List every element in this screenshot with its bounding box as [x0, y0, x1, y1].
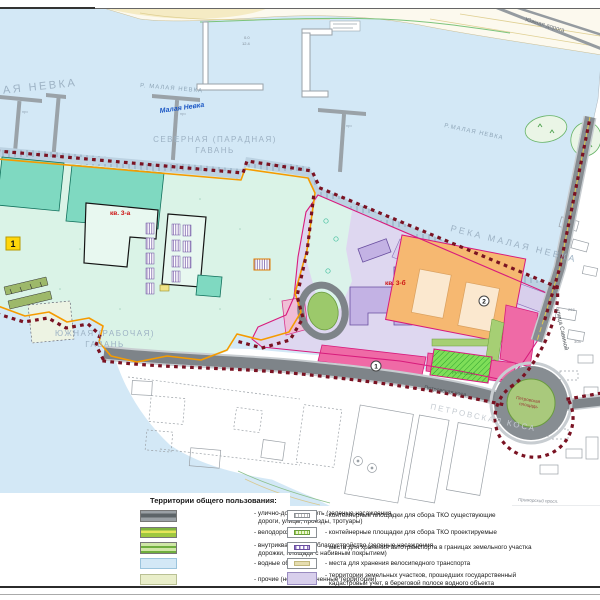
harbor-label: ЮЖНАЯ (РАБОЧАЯ)	[55, 329, 155, 338]
pier-label: прч	[346, 124, 352, 128]
legend-swatch-tko-planned	[287, 527, 317, 538]
harbor-label: ГАВАНЬ	[85, 340, 125, 349]
legend-title: Территории общего пользования:	[150, 497, 277, 504]
depth-label: 12.4	[242, 41, 251, 46]
harbor-label: ГАВАНЬ	[195, 146, 235, 155]
parcel-number: 268	[568, 307, 575, 312]
legend-item-label: - места для хранения велосипедного транс…	[325, 560, 470, 567]
sheet-bottom-rule	[0, 586, 600, 588]
legend-swatch-bike-storage	[287, 558, 317, 569]
zone-marker-1-label: 1	[10, 239, 15, 249]
block-label-kv3b: кв. 3-б	[385, 279, 406, 287]
legend-item-label: - контейнерные площадки для сбора ТКО су…	[325, 512, 496, 519]
legend-swatch-bike-paths	[140, 527, 177, 538]
building-badge-2-label: 2	[482, 299, 486, 306]
building	[0, 157, 64, 211]
legend-swatch-cadastral-waterfront	[287, 572, 317, 585]
legend-swatch-tko-existing	[287, 510, 317, 521]
legend-item-label: - места для хранения автотранспорта в гр…	[325, 544, 532, 551]
legend-item-label: - контейнерные площадки для сбора ТКО пр…	[325, 529, 497, 536]
parking-lot	[254, 259, 270, 270]
parcel-number: 308	[574, 339, 581, 344]
pier-label: прч	[180, 112, 186, 116]
harbor-label: СЕВЕРНАЯ (ПАРАДНАЯ)	[153, 135, 277, 144]
depth-label: 0.0	[244, 35, 250, 40]
pier-label: прч	[22, 110, 28, 114]
shore-note-box	[330, 21, 360, 31]
legend-swatch-other-territories	[140, 574, 177, 585]
legend-swatch-courtyard-landscaping	[140, 542, 177, 554]
legend-item-label: - территории земельных участков, прошедш…	[325, 572, 516, 579]
legend-swatch-car-storage	[287, 542, 317, 553]
sheet-bottom-rule-thin	[0, 594, 600, 595]
legend-swatch-water-objects	[140, 558, 177, 569]
block-label-kv3a: кв. 3-а	[110, 210, 131, 217]
bike-storage	[160, 285, 169, 291]
masterplan-map: МАЛАЯ НЕВКА Р. МАЛАЯ НЕВКА Малая Невка Р…	[0, 9, 600, 506]
legend-swatch-street-network	[140, 510, 177, 522]
road-badge-1-label: 1	[374, 364, 378, 371]
building	[196, 275, 222, 297]
masterplan-sheet: МАЛАЯ НЕВКА Р. МАЛАЯ НЕВКА Малая Невка Р…	[0, 0, 600, 600]
